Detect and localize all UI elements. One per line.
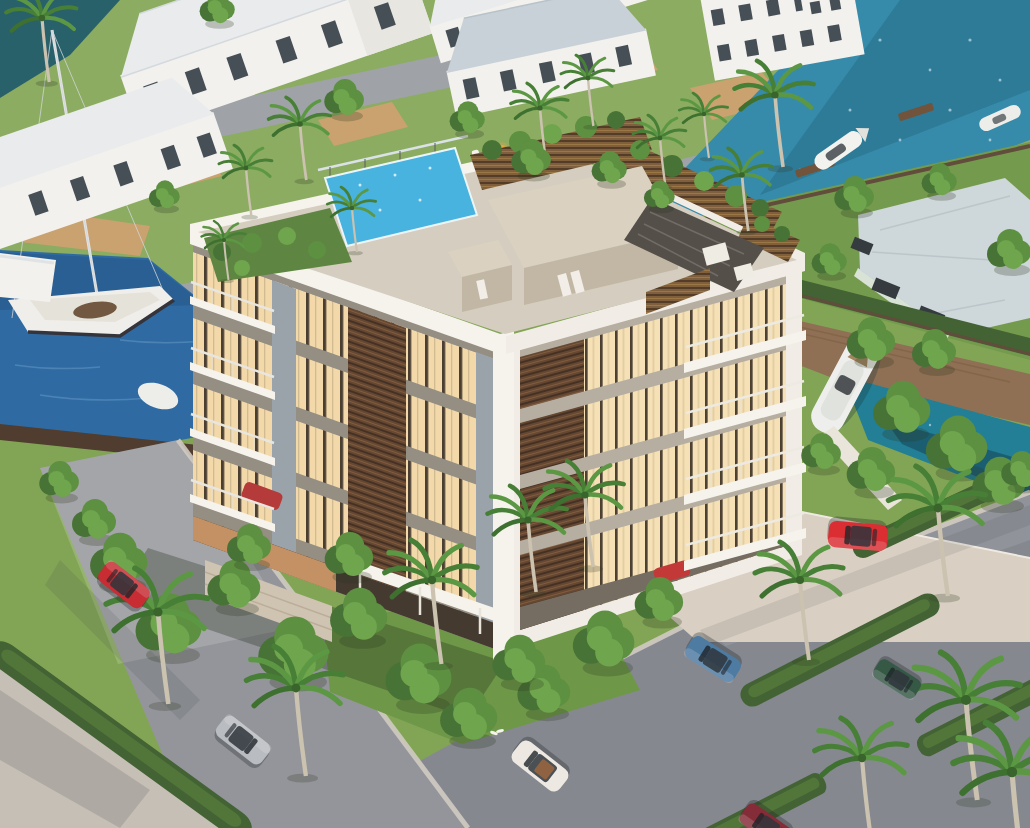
aerial-scene <box>0 0 1030 828</box>
sunlight-overlay <box>0 0 1030 828</box>
rendering-canvas <box>0 0 1030 828</box>
